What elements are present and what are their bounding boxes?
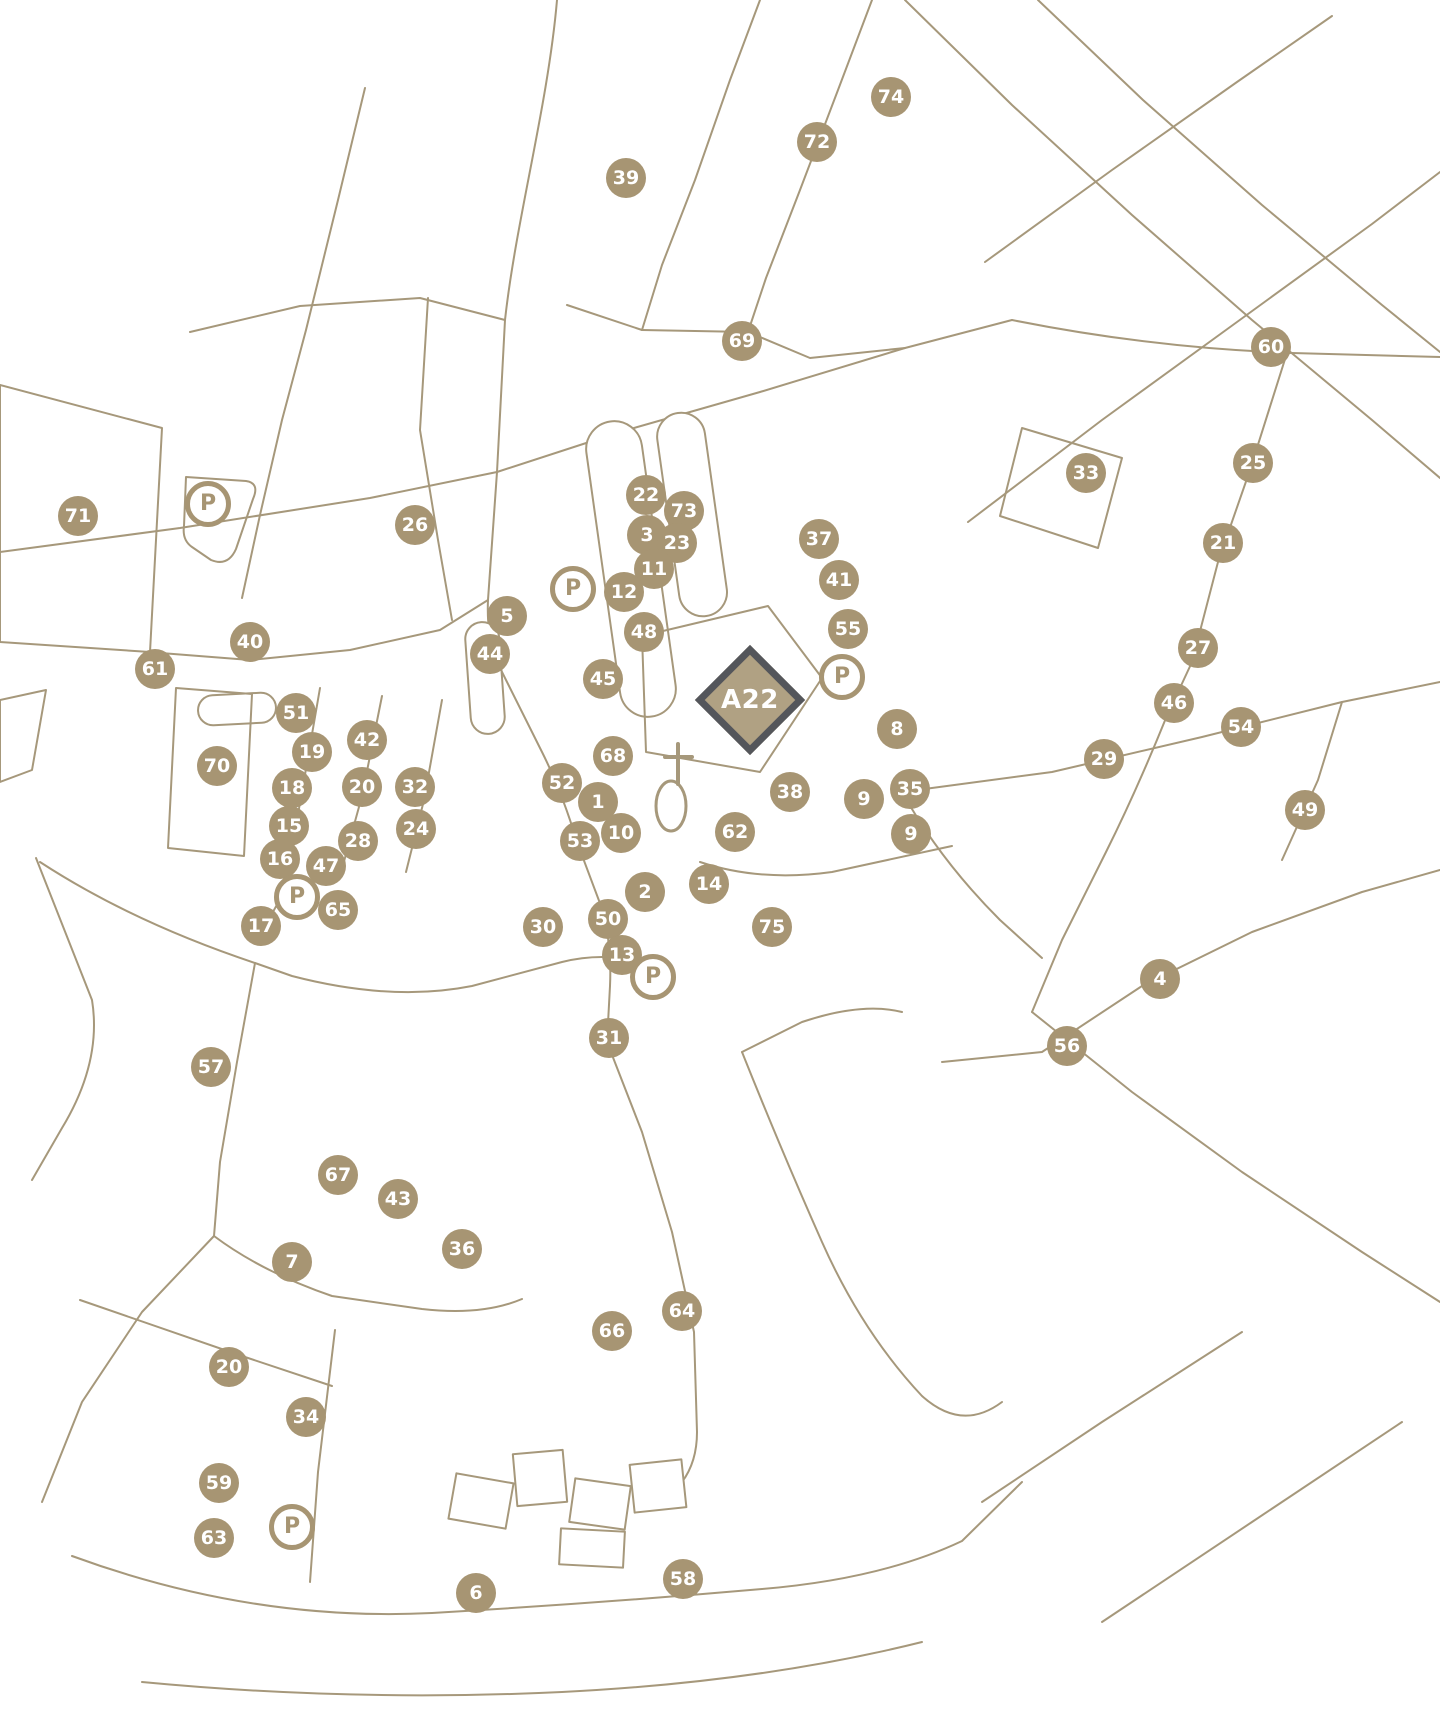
map-marker-53[interactable]: 53	[560, 821, 600, 861]
map-marker-58[interactable]: 58	[663, 1559, 703, 1599]
map-marker-69[interactable]: 69	[722, 321, 762, 361]
map-marker-4[interactable]: 4	[1140, 959, 1180, 999]
map-marker-7[interactable]: 7	[272, 1242, 312, 1282]
map-marker-19[interactable]: 19	[292, 732, 332, 772]
highlight-label: A22	[721, 687, 779, 713]
map-marker-62[interactable]: 62	[715, 812, 755, 852]
map-marker-37[interactable]: 37	[799, 519, 839, 559]
map-marker-71[interactable]: 71	[58, 496, 98, 536]
map-marker-25[interactable]: 25	[1233, 443, 1273, 483]
map-marker-46[interactable]: 46	[1154, 683, 1194, 723]
map-marker-16[interactable]: 16	[260, 839, 300, 879]
map-marker-31[interactable]: 31	[589, 1018, 629, 1058]
map-marker-52[interactable]: 52	[542, 763, 582, 803]
map-marker-65[interactable]: 65	[318, 890, 358, 930]
map-marker-48[interactable]: 48	[624, 612, 664, 652]
parking-marker[interactable]: P	[274, 874, 320, 920]
map-marker-72[interactable]: 72	[797, 122, 837, 162]
map-marker-66[interactable]: 66	[592, 1311, 632, 1351]
map-marker-22[interactable]: 22	[626, 475, 666, 515]
map-marker-12[interactable]: 12	[604, 572, 644, 612]
map-marker-20[interactable]: 20	[342, 767, 382, 807]
map-marker-64[interactable]: 64	[662, 1291, 702, 1331]
map-marker-28[interactable]: 28	[338, 821, 378, 861]
map-marker-44[interactable]: 44	[470, 634, 510, 674]
map-marker-21[interactable]: 21	[1203, 523, 1243, 563]
parking-marker[interactable]: P	[185, 481, 231, 527]
map-marker-51[interactable]: 51	[276, 693, 316, 733]
map-marker-34[interactable]: 34	[286, 1397, 326, 1437]
map-marker-5[interactable]: 5	[487, 596, 527, 636]
map-marker-9[interactable]: 9	[844, 779, 884, 819]
map-marker-49[interactable]: 49	[1285, 790, 1325, 830]
map-marker-33[interactable]: 33	[1066, 453, 1106, 493]
map-marker-30[interactable]: 30	[523, 907, 563, 947]
map-marker-26[interactable]: 26	[395, 505, 435, 545]
map-marker-29[interactable]: 29	[1084, 739, 1124, 779]
map-marker-41[interactable]: 41	[819, 560, 859, 600]
map-marker-27[interactable]: 27	[1178, 628, 1218, 668]
map-marker-2[interactable]: 2	[625, 872, 665, 912]
map-marker-38[interactable]: 38	[770, 772, 810, 812]
map-marker-57[interactable]: 57	[191, 1047, 231, 1087]
map-marker-40[interactable]: 40	[230, 622, 270, 662]
map-marker-60[interactable]: 60	[1251, 327, 1291, 367]
map-marker-20[interactable]: 20	[209, 1347, 249, 1387]
map-marker-45[interactable]: 45	[583, 659, 623, 699]
map-marker-68[interactable]: 68	[593, 736, 633, 776]
map-marker-9[interactable]: 9	[891, 814, 931, 854]
map-marker-54[interactable]: 54	[1221, 707, 1261, 747]
church-icon	[656, 744, 692, 831]
map-marker-74[interactable]: 74	[871, 77, 911, 117]
map-marker-50[interactable]: 50	[588, 899, 628, 939]
map-marker-61[interactable]: 61	[135, 649, 175, 689]
map-marker-18[interactable]: 18	[272, 768, 312, 808]
map-marker-67[interactable]: 67	[318, 1155, 358, 1195]
map-marker-63[interactable]: 63	[194, 1518, 234, 1558]
map-marker-14[interactable]: 14	[689, 864, 729, 904]
map-marker-35[interactable]: 35	[890, 769, 930, 809]
map-marker-75[interactable]: 75	[752, 907, 792, 947]
parking-marker[interactable]: P	[269, 1504, 315, 1550]
parking-marker[interactable]: P	[819, 654, 865, 700]
map-marker-70[interactable]: 70	[197, 746, 237, 786]
map-marker-32[interactable]: 32	[395, 767, 435, 807]
map-marker-56[interactable]: 56	[1047, 1026, 1087, 1066]
parking-marker[interactable]: P	[630, 954, 676, 1000]
map-marker-59[interactable]: 59	[199, 1463, 239, 1503]
map-marker-8[interactable]: 8	[877, 709, 917, 749]
parking-marker[interactable]: P	[550, 566, 596, 612]
map-marker-39[interactable]: 39	[606, 158, 646, 198]
map-marker-55[interactable]: 55	[828, 609, 868, 649]
map-marker-6[interactable]: 6	[456, 1573, 496, 1613]
map-marker-17[interactable]: 17	[241, 906, 281, 946]
map-marker-24[interactable]: 24	[396, 809, 436, 849]
map-marker-43[interactable]: 43	[378, 1179, 418, 1219]
map-marker-10[interactable]: 10	[601, 813, 641, 853]
city-map: 7472396960253322P73712633723211141P12555…	[0, 0, 1440, 1721]
map-marker-42[interactable]: 42	[347, 720, 387, 760]
map-marker-36[interactable]: 36	[442, 1229, 482, 1269]
